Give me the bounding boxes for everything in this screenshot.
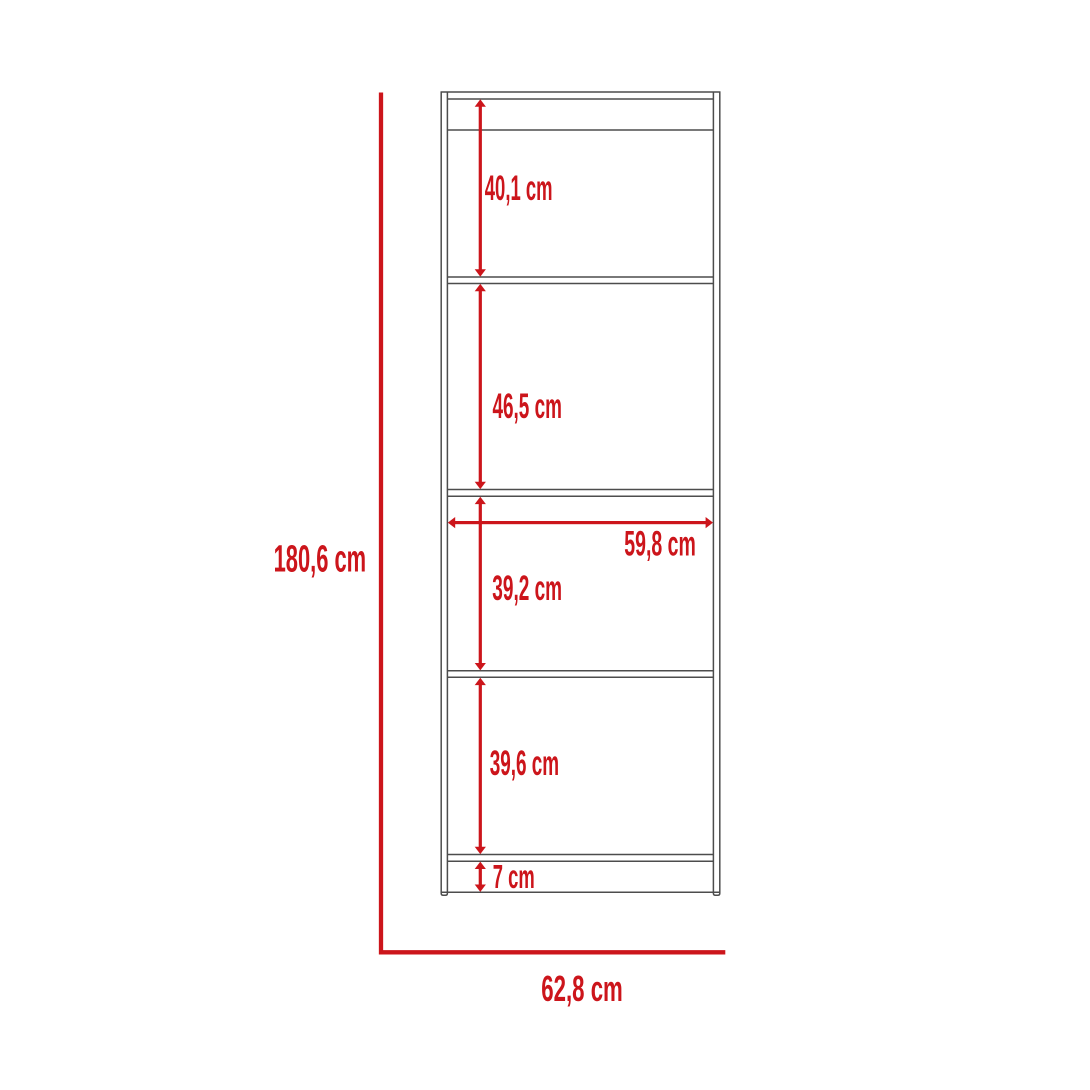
svg-text:180,6 cm: 180,6 cm <box>274 538 367 580</box>
svg-text:59,8 cm: 59,8 cm <box>624 524 696 564</box>
svg-text:39,2 cm: 39,2 cm <box>492 568 562 608</box>
svg-text:40,1 cm: 40,1 cm <box>485 168 553 208</box>
svg-text:62,8 cm: 62,8 cm <box>541 968 623 1009</box>
svg-text:39,6 cm: 39,6 cm <box>490 743 559 783</box>
svg-text:7 cm: 7 cm <box>493 858 535 895</box>
svg-text:46,5 cm: 46,5 cm <box>493 386 562 426</box>
